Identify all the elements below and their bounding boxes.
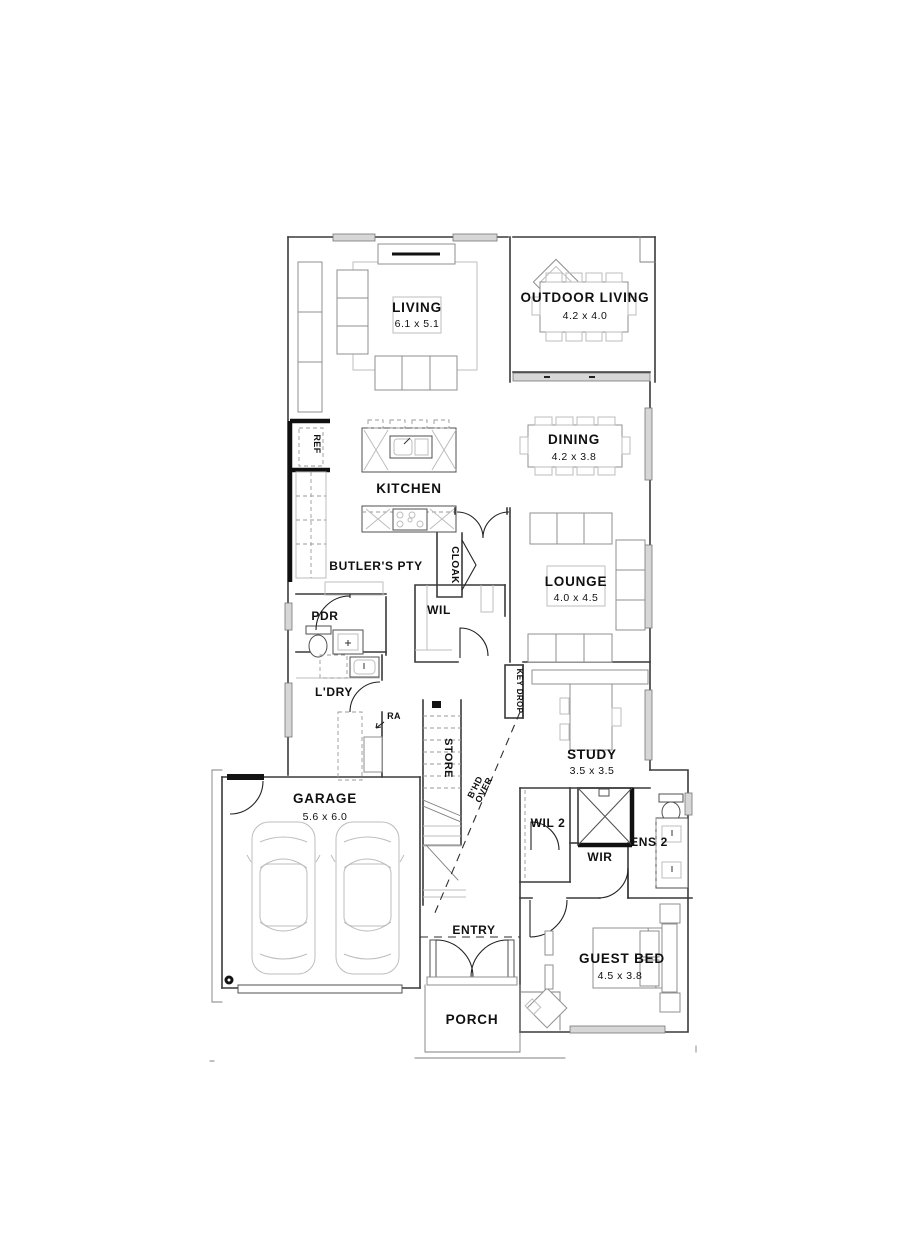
bookshelf bbox=[298, 262, 322, 412]
garage-side-door bbox=[230, 781, 263, 814]
wil-door bbox=[460, 628, 488, 658]
room-label-outdoor-living: OUTDOOR LIVING bbox=[521, 290, 650, 305]
room-label-laundry: L'DRY bbox=[315, 685, 353, 699]
living-rug bbox=[353, 262, 477, 370]
stairs bbox=[423, 701, 466, 897]
toilet-cistern bbox=[306, 626, 331, 634]
laundry-cabinet bbox=[364, 737, 382, 772]
room-label-lounge: LOUNGE bbox=[545, 574, 608, 589]
garage-door bbox=[238, 985, 402, 993]
car-2 bbox=[331, 822, 404, 974]
toilet-bowl bbox=[309, 635, 327, 657]
floor-plan-drawing: RA B'HD OVER bbox=[0, 0, 901, 1246]
window-top-living-1 bbox=[333, 234, 375, 241]
room-dims-lounge: 4.0 x 4.5 bbox=[554, 592, 599, 604]
room-label-key-drop: KEY DROP bbox=[515, 669, 524, 714]
window-laundry bbox=[285, 683, 292, 737]
window-study bbox=[645, 690, 652, 760]
room-label-pdr: PDR bbox=[311, 609, 338, 623]
bedside-table-1 bbox=[660, 904, 680, 923]
window-lounge bbox=[645, 545, 652, 628]
room-label-ref: REF bbox=[312, 434, 322, 453]
washer-space bbox=[320, 655, 347, 678]
study-desk-return bbox=[532, 670, 648, 684]
lounge-sofa-right bbox=[616, 540, 645, 630]
bedside-table-2 bbox=[660, 993, 680, 1012]
lounge-sofa-bottom bbox=[528, 634, 612, 662]
entry-doors bbox=[430, 940, 514, 980]
room-label-dining: DINING bbox=[548, 432, 600, 447]
room-dims-dining: 4.2 x 3.8 bbox=[552, 451, 597, 463]
pdr-fixtures bbox=[306, 594, 363, 657]
floor-plan-page: RA B'HD OVER bbox=[0, 0, 901, 1246]
double-door-kitchen-hall bbox=[455, 508, 509, 538]
outdoor-living-furniture bbox=[532, 273, 636, 341]
stair-marker bbox=[432, 701, 441, 708]
room-label-kitchen: KITCHEN bbox=[376, 481, 442, 496]
window-pdr bbox=[285, 603, 292, 630]
sofa-left bbox=[337, 270, 368, 354]
shower-rose bbox=[599, 789, 609, 796]
room-dims-outdoor-living: 4.2 x 4.0 bbox=[563, 310, 608, 322]
room-label-guest-bed: GUEST BED bbox=[579, 951, 665, 966]
car-1 bbox=[247, 822, 320, 974]
sofa-bottom bbox=[375, 356, 457, 390]
study-furniture bbox=[532, 670, 648, 750]
window-ens2 bbox=[685, 793, 692, 815]
floor-over-note: B'HD OVER bbox=[465, 771, 494, 804]
window-guest-bed bbox=[570, 1026, 665, 1033]
lounge-sofa-top bbox=[530, 513, 612, 544]
ens2-cistern bbox=[659, 794, 683, 802]
room-label-living: LIVING bbox=[392, 300, 442, 315]
room-label-wil2: WIL 2 bbox=[531, 816, 566, 830]
room-dims-study: 3.5 x 3.5 bbox=[570, 765, 615, 777]
room-label-wir: WIR bbox=[587, 850, 612, 864]
laundry-fixtures bbox=[296, 655, 382, 780]
window-top-living-2 bbox=[453, 234, 497, 241]
room-label-wil: WIL bbox=[427, 603, 451, 617]
window-dining bbox=[645, 408, 652, 480]
room-label-study: STUDY bbox=[567, 747, 617, 762]
entry-porch bbox=[415, 937, 567, 1058]
ra-label: RA bbox=[387, 711, 401, 721]
room-dims-guest-bed: 4.5 x 3.8 bbox=[598, 970, 643, 982]
room-label-entry: ENTRY bbox=[452, 923, 495, 937]
laundry-door bbox=[350, 682, 380, 712]
butlers-bench bbox=[325, 582, 383, 595]
ra-annotation: RA bbox=[376, 711, 401, 728]
study-desk bbox=[570, 684, 612, 750]
stacker-door bbox=[513, 373, 650, 381]
broom-cupboard bbox=[338, 712, 362, 780]
wir-door bbox=[598, 868, 628, 898]
room-label-cloak: CLOAK bbox=[449, 546, 460, 584]
room-label-store: STORE bbox=[442, 738, 454, 778]
room-label-ens2: ENS 2 bbox=[630, 835, 668, 849]
room-dims-living: 6.1 x 5.1 bbox=[395, 318, 440, 330]
room-label-butlers-pantry: BUTLER'S PTY bbox=[329, 559, 422, 573]
room-label-porch: PORCH bbox=[446, 1012, 499, 1027]
entry-threshold bbox=[427, 977, 517, 985]
room-dims-garage: 5.6 x 6.0 bbox=[303, 811, 348, 823]
garage bbox=[225, 774, 405, 993]
room-label-garage: GARAGE bbox=[293, 791, 357, 806]
